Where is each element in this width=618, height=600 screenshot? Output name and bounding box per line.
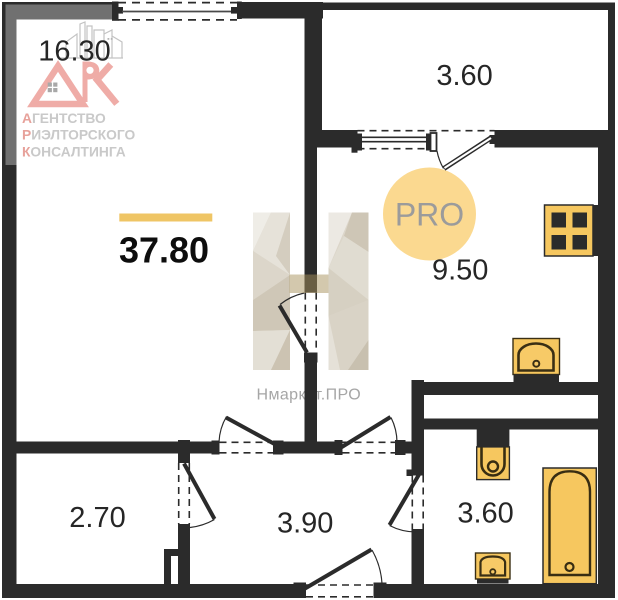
- svg-text:3.90: 3.90: [277, 508, 333, 540]
- svg-text:2.70: 2.70: [69, 502, 125, 534]
- svg-text:PRO: PRO: [395, 197, 464, 233]
- svg-text:3.60: 3.60: [436, 60, 492, 92]
- svg-text:3.60: 3.60: [457, 497, 513, 529]
- svg-text:РИЭЛТОРСКОГО: РИЭЛТОРСКОГО: [22, 127, 136, 142]
- svg-text:КОНСАЛТИНГА: КОНСАЛТИНГА: [22, 145, 126, 160]
- svg-text:АГЕНТСТВО: АГЕНТСТВО: [22, 111, 106, 126]
- svg-text:16.30: 16.30: [38, 35, 111, 67]
- svg-text:37.80: 37.80: [119, 229, 209, 270]
- svg-text:9.50: 9.50: [432, 255, 488, 287]
